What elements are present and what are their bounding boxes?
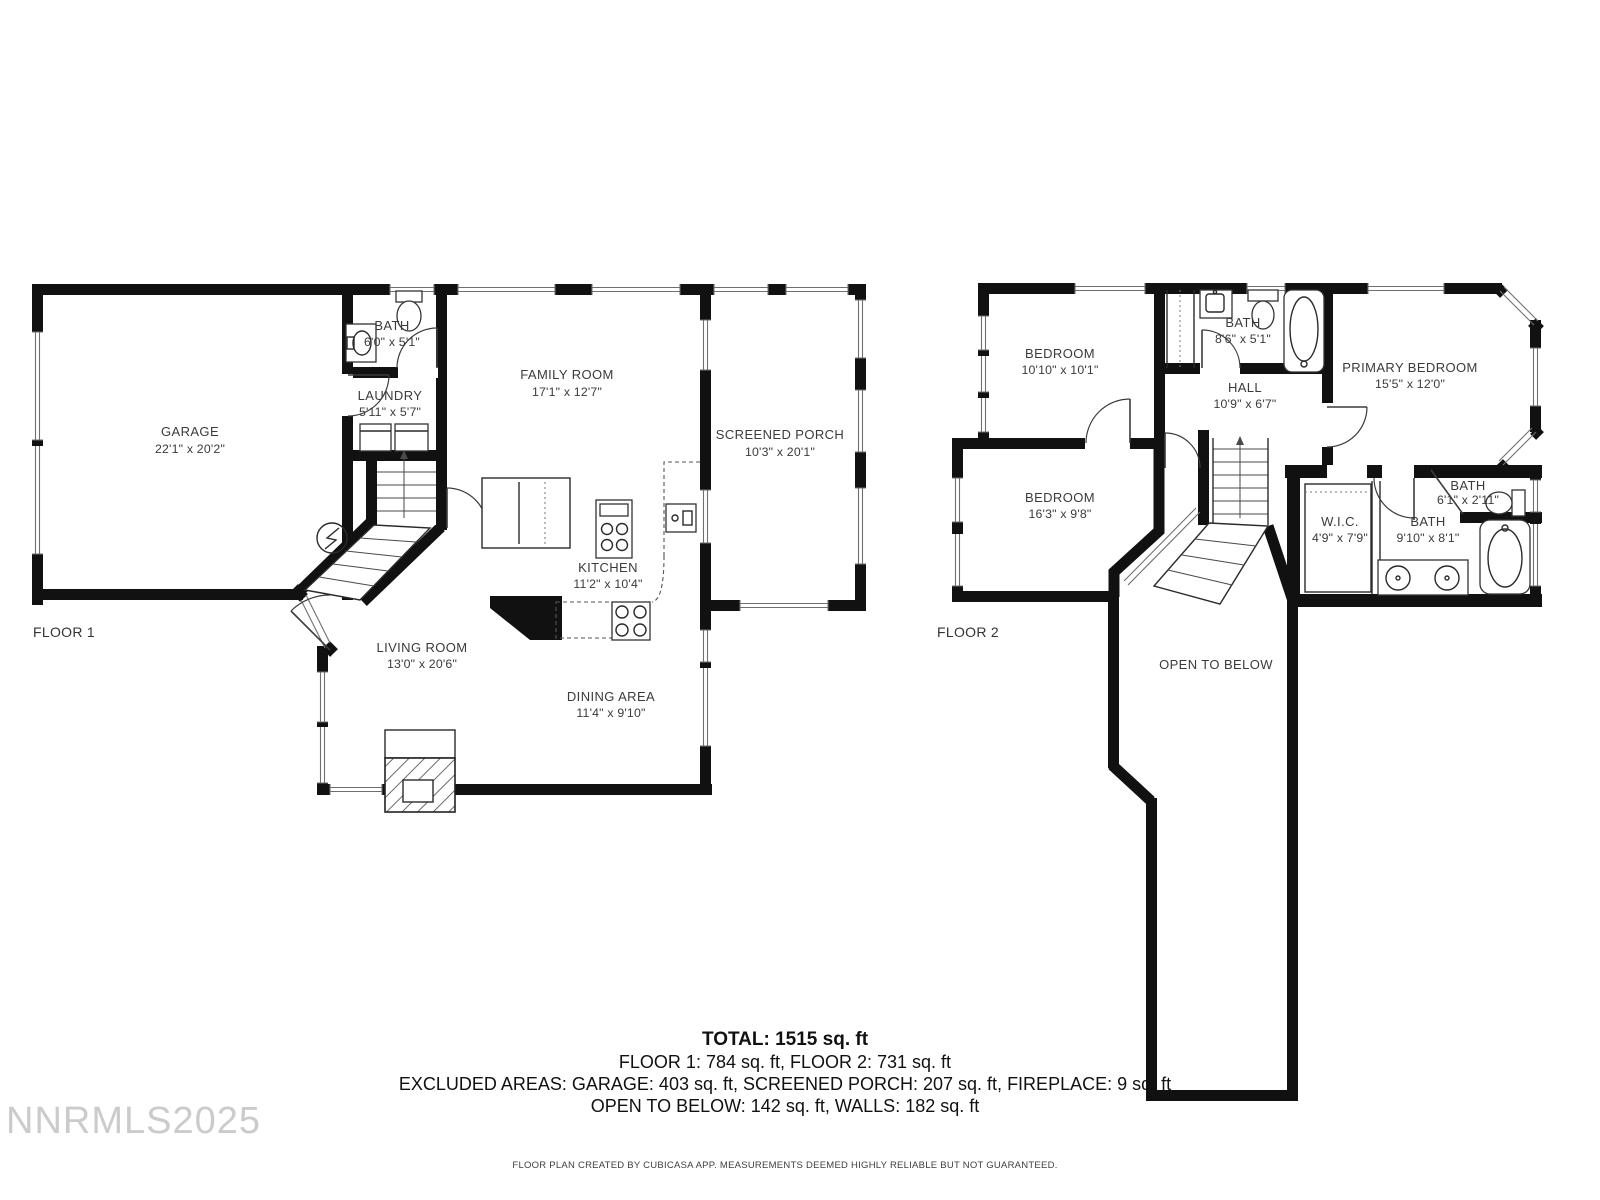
room-label-dining-area: DINING AREA	[567, 689, 655, 704]
room-label-family-room: FAMILY ROOM	[520, 367, 614, 382]
room-dims-laundry: 5'11" x 5'7"	[359, 405, 421, 419]
summary-excluded: EXCLUDED AREAS: GARAGE: 403 sq. ft, SCRE…	[0, 1073, 1570, 1095]
room-label-bath1: BATH	[374, 318, 409, 333]
room-label-garage: GARAGE	[161, 424, 219, 439]
bay-window-top	[1500, 287, 1538, 325]
room-label-bedroom1: BEDROOM	[1025, 346, 1095, 361]
room-label-primary-bedroom: PRIMARY BEDROOM	[1342, 360, 1478, 375]
room-dims-screened-porch: 10'3" x 20'1"	[745, 445, 815, 459]
toilet-icon	[1512, 490, 1525, 516]
pantry-closet	[482, 478, 570, 548]
floor1-plan: GARAGE 22'1" x 20'2" BATH 6'0" x 5'1" LA…	[32, 284, 866, 812]
dryer-icon	[395, 424, 428, 451]
room-label-living-room: LIVING ROOM	[376, 640, 467, 655]
room-dims-garage: 22'1" x 20'2"	[155, 442, 225, 456]
room-label-screened-porch: SCREENED PORCH	[716, 427, 844, 442]
floor1-windows	[32, 284, 866, 795]
room-label-kitchen: KITCHEN	[578, 560, 638, 575]
summary-floors: FLOOR 1: 784 sq. ft, FLOOR 2: 731 sq. ft	[0, 1051, 1570, 1073]
room-dims-hall: 10'9" x 6'7"	[1213, 397, 1276, 411]
room-dims-bath1: 6'0" x 5'1"	[364, 335, 420, 349]
room-dims-bedroom2: 16'3" x 9'8"	[1028, 507, 1091, 521]
washer-icon	[360, 424, 391, 451]
double-vanity	[1378, 560, 1468, 595]
room-label-wic: W.I.C.	[1321, 514, 1359, 529]
laundry-appliances	[360, 424, 428, 451]
floor2-doors	[1085, 330, 1463, 520]
room-dims-kitchen: 11'2" x 10'4"	[573, 577, 642, 591]
room-dims-family-room: 17'1" x 12'7"	[532, 385, 602, 399]
toilet-icon	[1248, 290, 1278, 301]
pantry-door-arc	[447, 488, 487, 528]
room-dims-primary-bedroom: 15'5" x 12'0"	[1375, 377, 1445, 391]
entry-door-panel	[301, 595, 330, 648]
room-label-hall: HALL	[1228, 380, 1262, 395]
disclaimer-text: FLOOR PLAN CREATED BY CUBICASA APP. MEAS…	[0, 1160, 1570, 1171]
floorplan-canvas: GARAGE 22'1" x 20'2" BATH 6'0" x 5'1" LA…	[0, 0, 1600, 1200]
floor2-label: FLOOR 2	[937, 624, 999, 640]
room-dims-bath-primary: 9'10" x 8'1"	[1396, 531, 1459, 545]
staircase-floor2	[1154, 436, 1268, 604]
bedroom1-door-arc	[1086, 399, 1130, 443]
floor2-plan: BEDROOM 10'10" x 10'1" BATH 8'6" x 5'1" …	[937, 283, 1542, 1101]
floor1-label: FLOOR 1	[33, 624, 95, 640]
room-dims-living-room: 13'0" x 20'6"	[387, 657, 457, 671]
room-label-bath-primary: BATH	[1410, 514, 1445, 529]
fireplace	[385, 730, 455, 812]
landing-door-arc	[1165, 433, 1200, 468]
room-label-open-to-below: OPEN TO BELOW	[1159, 657, 1273, 672]
floorplan-page: GARAGE 22'1" x 20'2" BATH 6'0" x 5'1" LA…	[0, 0, 1600, 1200]
room-dims-bath-small: 6'1" x 2'11"	[1437, 493, 1499, 507]
bath-hall-fixtures	[1167, 290, 1324, 372]
room-dims-dining-area: 11'4" x 9'10"	[576, 706, 645, 720]
room-label-bedroom2: BEDROOM	[1025, 490, 1095, 505]
room-dims-bath-hall: 8'6" x 5'1"	[1215, 332, 1271, 346]
room-label-bath-small: BATH	[1450, 478, 1485, 493]
mls-watermark: NNRMLS2025	[6, 1100, 261, 1143]
hearth	[385, 730, 455, 758]
room-dims-wic: 4'9" x 7'9"	[1312, 531, 1368, 545]
dining-corner-wall	[490, 596, 562, 640]
room-dims-bedroom1: 10'10" x 10'1"	[1021, 363, 1098, 377]
bay-window-bottom	[1499, 428, 1536, 465]
floor1-walls	[32, 284, 866, 795]
room-label-bath-hall: BATH	[1225, 315, 1260, 330]
room-label-laundry: LAUNDRY	[358, 388, 423, 403]
summary-total: TOTAL: 1515 sq. ft	[0, 1028, 1570, 1051]
